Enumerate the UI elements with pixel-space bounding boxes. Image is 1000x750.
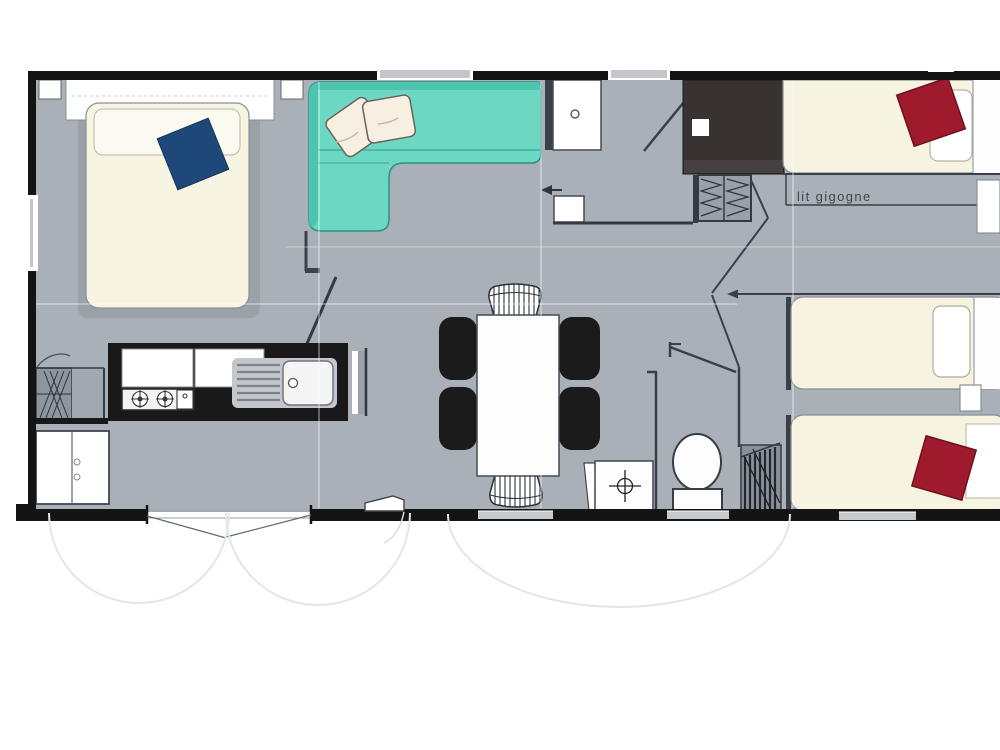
svg-text:lit gigogne: lit gigogne [797, 189, 872, 204]
